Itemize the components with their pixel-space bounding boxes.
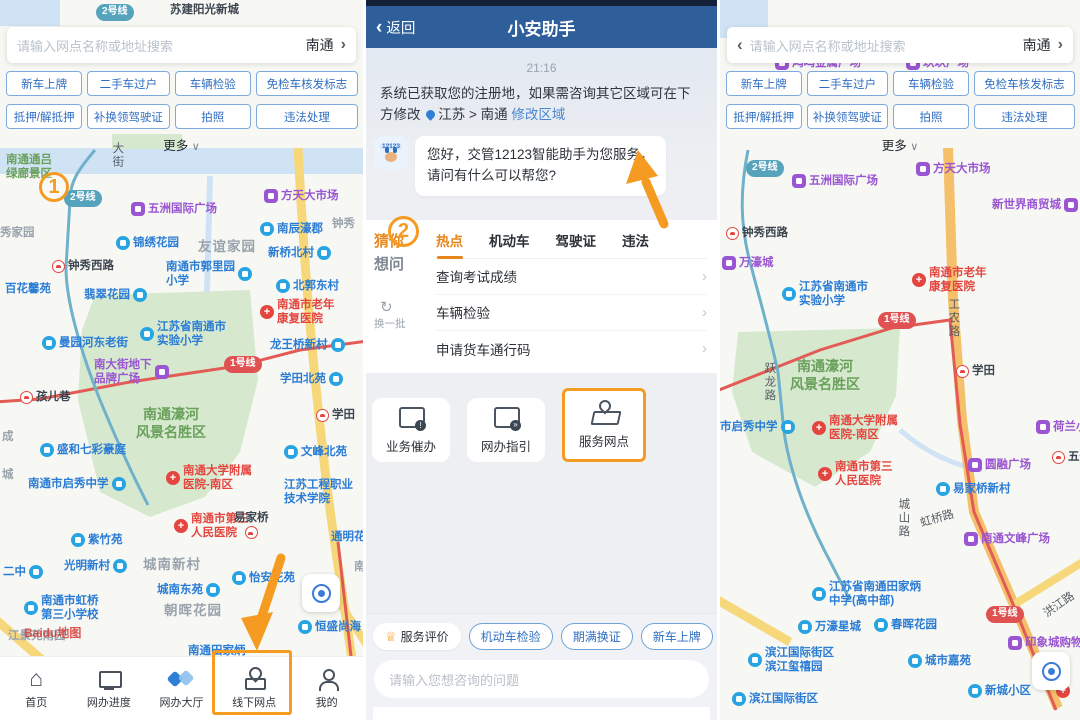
back-chevron-icon: ‹ (376, 18, 382, 37)
map-text-label: 百花馨苑 (5, 282, 51, 296)
chat-input[interactable]: 请输入您想咨询的问题 (374, 660, 709, 698)
building-pin-icon (798, 620, 812, 634)
back-label: 返回 (386, 17, 415, 38)
map-poi-label[interactable]: 南通市郭里园 小学 (166, 260, 252, 289)
map-text-label: 南 (354, 560, 363, 574)
service-button[interactable]: 免检车核发标志 (256, 71, 358, 96)
search-placeholder: 请输入网点名称或地址搜索 (750, 36, 1016, 55)
metro-line-badge: 2号线 (96, 4, 134, 21)
building-pin-icon (331, 338, 345, 352)
chat-footer: ♕ 服务评价 机动车检验期满换证新车上牌 请输入您想咨询的问题 (366, 613, 717, 720)
doc-icon (396, 405, 426, 431)
city-selector[interactable]: 南通 (306, 35, 334, 55)
tabbar-item-monitor[interactable]: 网办进度 (73, 657, 146, 720)
map-poi-label[interactable]: 印象城购物中心 (1008, 636, 1080, 650)
search-placeholder: 请输入网点名称或地址搜索 (17, 36, 299, 55)
map-poi-label[interactable]: 盛和七彩豪庭 (40, 443, 126, 457)
map-poi-label[interactable]: 新城小区 (968, 684, 1031, 698)
mall-pin-icon (264, 189, 278, 203)
bottom-tab-bar: ⌂首页网办进度网办大厅线下网点我的 (0, 656, 363, 720)
annotation-step-badge: 1 (39, 172, 69, 202)
caret-down-icon: ∨ (192, 141, 200, 153)
metro-station-label[interactable]: 学田 (316, 408, 355, 422)
mall-pin-icon (968, 458, 982, 472)
area-label: 南通濠河 风景名胜区 (790, 358, 860, 393)
mall-pin-icon (964, 532, 978, 546)
guess-side: 猜你 想问 ↻ 换一批 (374, 230, 436, 367)
map-poi-label[interactable]: 南通大学附属 医院-南区 (812, 414, 898, 443)
building-pin-icon (133, 288, 147, 302)
pin-icon (242, 667, 266, 691)
service-button[interactable]: 新车上牌 (6, 71, 82, 96)
system-message: 系统已获取您的注册地，如果需咨询其它区域可在下方修改 江苏 > 南通 修改区域 (380, 84, 703, 126)
map-poi-label[interactable]: 北郭东村 (276, 279, 339, 293)
home-icon: ⌂ (24, 667, 48, 691)
metro-station-label[interactable]: 钟秀西路 (726, 226, 788, 240)
service-button[interactable]: 补换领驾驶证 (87, 104, 169, 129)
guess-questions-panel: 猜你 想问 ↻ 换一批 热点机动车驾驶证违法 查询考试成绩›车辆检验›申请货车通… (366, 220, 717, 373)
building-pin-icon (40, 443, 54, 457)
metro-station-label[interactable]: 孩儿巷 (20, 390, 71, 404)
service-rating-chip[interactable]: ♕ 服务评价 (373, 623, 461, 650)
road-label: 城山路 (896, 498, 910, 539)
map-poi-label[interactable]: 光明新村 (64, 559, 127, 573)
question-tab[interactable]: 热点 (436, 230, 463, 250)
medal-icon: ♕ (385, 629, 397, 645)
map-poi-label[interactable]: 方天大市场 (264, 189, 339, 203)
chevron-right-icon: › (702, 268, 707, 285)
mall-pin-icon (155, 365, 169, 379)
crosshair-icon (1042, 662, 1061, 681)
annotation-step-2-badge: 2 (388, 216, 419, 247)
quick-chip[interactable]: 期满换证 (561, 623, 633, 650)
map-poi-label[interactable]: 南通市虹桥 第三小学校 (24, 594, 99, 623)
mall-pin-icon (916, 162, 930, 176)
action-card[interactable]: 网办指引 (467, 398, 545, 462)
chevron-right-icon: › (341, 36, 346, 54)
crosshair-icon (312, 584, 331, 603)
map-text-label: 江苏工程职业 技术学院 (284, 478, 353, 507)
question-tab[interactable]: 机动车 (489, 230, 530, 250)
search-bar[interactable]: 请输入网点名称或地址搜索 南通 › (7, 27, 356, 63)
mall-pin-icon (1064, 198, 1078, 212)
metro-station-icon (316, 409, 329, 422)
more-button[interactable]: 更多 ∨ (0, 135, 363, 154)
locate-me-button[interactable] (1032, 652, 1070, 690)
bottom-strip (373, 707, 710, 720)
service-button[interactable]: 二手车过户 (807, 71, 889, 96)
mall-pin-icon (131, 202, 145, 216)
refresh-icon: ↻ (380, 300, 393, 315)
mall-pin-icon (1036, 420, 1050, 434)
quick-chip[interactable]: 机动车检验 (469, 623, 553, 650)
caret-down-icon: ∨ (910, 141, 918, 153)
building-pin-icon (748, 653, 762, 667)
chevron-right-icon: › (702, 340, 707, 357)
building-pin-icon (329, 372, 343, 386)
building-pin-icon (908, 654, 922, 668)
metro-station-label[interactable]: 学田 (956, 364, 995, 378)
metro-station-icon (726, 227, 739, 240)
guide-icon (491, 405, 521, 431)
metro-station-label[interactable]: 钟秀西路 (52, 259, 114, 273)
service-button[interactable]: 新车上牌 (726, 71, 802, 96)
service-button[interactable]: 抵押/解抵押 (6, 104, 82, 129)
service-button[interactable]: 免检车核发标志 (974, 71, 1075, 96)
area-label: 南通濠河 风景名胜区 (136, 406, 206, 441)
back-button[interactable]: ‹ 返回 (376, 17, 415, 38)
annotation-arrow-up (618, 148, 682, 238)
building-pin-icon (781, 420, 795, 434)
building-pin-icon (113, 559, 127, 573)
map-poi-label[interactable]: 翡翠花园 (84, 288, 147, 302)
building-pin-icon (238, 267, 252, 281)
tabbar-item-pin[interactable]: 线下网点 (218, 657, 291, 720)
map-poi-label[interactable]: 圆融广场 (968, 458, 1031, 472)
city-selector[interactable]: 南通 (1023, 35, 1051, 55)
question-item[interactable]: 车辆检验› (436, 295, 707, 331)
avatar-12123-tag: 12123 (380, 143, 402, 150)
map-poi-label[interactable]: 南辰濠郡 (260, 222, 323, 236)
map-poi-label[interactable]: 滨江国际街区 (732, 692, 818, 706)
location-pin-icon (424, 108, 437, 121)
building-pin-icon (116, 236, 130, 250)
map-poi-label[interactable]: 文峰北苑 (284, 445, 347, 459)
map-poi-label[interactable]: 市启秀中学 (720, 420, 795, 434)
road-label: 跃龙路 (762, 362, 776, 403)
map-poi-label[interactable]: 江苏省南通市 实验小学 (782, 280, 868, 309)
service-button[interactable]: 补换领驾驶证 (807, 104, 889, 129)
hospital-pin-icon (260, 305, 274, 319)
map-panel-left: 苏建阳光新城2号线南通通吕 绿廊景区12号线大街五洲国际广场方天大市场南辰濠郡钟… (0, 0, 363, 720)
question-list: 查询考试成绩›车辆检验›申请货车通行码› (436, 259, 707, 367)
building-pin-icon (29, 565, 43, 579)
building-pin-icon (276, 279, 290, 293)
map-panel-right: 鸿鸣金属广场玖玖广场2号线五洲国际广场方天大市场新世界商贸城钟秀西路万濠城江苏省… (720, 0, 1080, 720)
building-pin-icon (936, 482, 950, 496)
chat-header: ‹ 返回 小安助手 (366, 6, 717, 48)
map-poi-label[interactable]: 南通文峰广场 (964, 532, 1050, 546)
map-text-label: 成 (2, 430, 14, 444)
map-poi-label[interactable]: 南大街地下 品牌广场 (94, 358, 169, 387)
tabbar-item-user[interactable]: 我的 (290, 657, 363, 720)
baidu-watermark: Baidu地图 (24, 626, 81, 641)
more-button[interactable]: 更多 ∨ (720, 135, 1080, 154)
map-poi-label[interactable]: 五洲国际广场 (792, 174, 878, 188)
question-item[interactable]: 查询考试成绩› (436, 259, 707, 295)
service-button[interactable]: 违法处理 (974, 104, 1075, 129)
back-chevron-icon[interactable]: ‹ (737, 35, 743, 55)
metro-station-icon (52, 260, 65, 273)
map-text-label: 钟秀 (332, 217, 355, 231)
map-poi-label[interactable]: 易家桥新村 (936, 482, 1011, 496)
map-poi-label[interactable]: 五洲国际广场 (131, 202, 217, 216)
monitor-icon (97, 667, 121, 691)
chat-panel: ‹ 返回 小安助手 21:16 系统已获取您的注册地，如果需咨询其它区域可在下方… (363, 0, 720, 720)
map-poi-label[interactable]: 南通市启秀中学 (28, 477, 126, 491)
map-text-label: 城南新村 (143, 557, 201, 574)
map-poi-label[interactable]: 龙王桥新村 (270, 338, 345, 352)
service-button[interactable]: 车辆检验 (893, 71, 969, 96)
map-poi-label[interactable]: 城南东苑 (157, 583, 220, 597)
action-cards: 业务催办网办指引服务网点 (372, 388, 711, 462)
hospital-pin-icon (166, 471, 180, 485)
building-pin-icon (206, 583, 220, 597)
metro-line-badge: 2号线 (746, 160, 784, 177)
chevron-right-icon: › (702, 304, 707, 321)
map-poi-label[interactable]: 曼园河东老街 (42, 336, 128, 350)
map-poi-label[interactable]: 江苏省南通市 实验小学 (140, 320, 226, 349)
action-card[interactable]: 业务催办 (372, 398, 450, 462)
annotation-arrow-down (233, 548, 297, 660)
building-pin-icon (298, 620, 312, 634)
mall-pin-icon (792, 174, 806, 188)
mall-pin-icon (722, 256, 736, 270)
timestamp: 21:16 (366, 48, 717, 75)
hospital-pin-icon (912, 273, 926, 287)
metro-line-badge: 1号线 (986, 606, 1024, 623)
service-button-grid: 新车上牌二手车过户车辆检验免检车核发标志抵押/解抵押补换领驾驶证拍照违法处理 (726, 71, 1075, 129)
map-poi-label[interactable]: 万濠城 (722, 256, 774, 270)
action-card[interactable]: 服务网点 (562, 388, 646, 462)
map-poi-label[interactable]: 城市嘉苑 (908, 654, 971, 668)
metro-station-label[interactable]: 五一 (1052, 450, 1080, 464)
guess-main: 热点机动车驾驶证违法 查询考试成绩›车辆检验›申请货车通行码› (436, 230, 707, 367)
building-pin-icon (112, 477, 126, 491)
metro-station-icon (1052, 451, 1065, 464)
metro-line-badge: 1号线 (224, 356, 262, 373)
building-pin-icon (42, 336, 56, 350)
map-poi-label[interactable]: 新世界商贸城 (992, 198, 1078, 212)
service-button[interactable]: 拍照 (175, 104, 251, 129)
map-poi-label[interactable]: 二中 (3, 565, 43, 579)
tabbar-item-hall[interactable]: 网办大厅 (145, 657, 218, 720)
service-button[interactable]: 二手车过户 (87, 71, 169, 96)
map-text-label: 城 (2, 468, 14, 482)
map-text-label: 友谊家园 (198, 239, 256, 256)
building-pin-icon (812, 587, 826, 601)
deer-mascot-icon (385, 152, 397, 162)
hospital-pin-icon (174, 519, 188, 533)
edit-region-link[interactable]: 修改区域 (511, 107, 565, 122)
chat-body: 21:16 系统已获取您的注册地，如果需咨询其它区域可在下方修改 江苏 > 南通… (366, 48, 717, 613)
metro-station-label[interactable]: 易家桥 (234, 511, 269, 539)
metro-station-icon (956, 365, 969, 378)
metro-station-icon (245, 526, 258, 539)
map-text-label: 秀家园 (0, 226, 35, 240)
service-button[interactable]: 抵押/解抵押 (726, 104, 802, 129)
quick-chip[interactable]: 新车上牌 (641, 623, 713, 650)
hospital-pin-icon (812, 421, 826, 435)
hospital-pin-icon (818, 467, 832, 481)
map-poi-label[interactable]: 南通市老年 康复医院 (260, 298, 335, 327)
screenshot-stage: 苏建阳光新城2号线南通通吕 绿廊景区12号线大街五洲国际广场方天大市场南辰濠郡钟… (0, 0, 1080, 720)
search-bar[interactable]: ‹ 请输入网点名称或地址搜索 南通 › (727, 27, 1073, 63)
building-pin-icon (732, 692, 746, 706)
user-icon (315, 667, 339, 691)
building-pin-icon (140, 327, 154, 341)
hall-icon (169, 667, 193, 691)
service-button[interactable]: 拍照 (893, 104, 969, 129)
locate-me-button[interactable] (302, 574, 340, 612)
map-poi-label[interactable]: 恒盛尚海 (298, 620, 361, 634)
question-item[interactable]: 申请货车通行码› (436, 331, 707, 367)
metro-station-icon (20, 391, 33, 404)
map-poi-label[interactable]: 江苏省南通田家炳 中学(高中部) (812, 580, 921, 609)
map-text-label: 朝晖花园 (164, 603, 222, 620)
map-poi-label[interactable]: 南通市第三 人民医院 (818, 460, 893, 489)
page-title: 小安助手 (366, 15, 717, 40)
map-poi-label[interactable]: 锦绣花园 (116, 236, 179, 250)
map-poi-label[interactable]: 方天大市场 (916, 162, 991, 176)
guess-title-bottom: 想问 (374, 253, 436, 274)
assistant-avatar: 12123 (374, 136, 408, 170)
region-path: 江苏 > 南通 (438, 107, 507, 122)
building-pin-icon (968, 684, 982, 698)
map-poi-label[interactable]: 南通大学附属 医院-南区 (166, 464, 252, 493)
building-pin-icon (24, 601, 38, 615)
building-pin-icon (284, 445, 298, 459)
map-poi-label[interactable]: 滨江国际街区 滨江玺禧园 (748, 646, 834, 675)
map-text-label: 苏建阳光新城 (170, 3, 239, 17)
map-poi-label[interactable]: 春晖花园 (874, 618, 937, 632)
service-button[interactable]: 违法处理 (256, 104, 358, 129)
map-poi-label[interactable]: 新桥北村 (268, 246, 331, 260)
tabbar-item-home[interactable]: ⌂首页 (0, 657, 73, 720)
refresh-button[interactable]: ↻ 换一批 (374, 300, 436, 331)
building-pin-icon (260, 222, 274, 236)
map-poi-label[interactable]: 紫竹苑 (71, 533, 123, 547)
metro-line-badge: 1号线 (878, 312, 916, 329)
mall-pin-icon (1008, 636, 1022, 650)
chevron-right-icon: › (1058, 36, 1063, 54)
map-text-label: 通明花苑 (331, 530, 363, 544)
service-button[interactable]: 车辆检验 (175, 71, 251, 96)
building-pin-icon (71, 533, 85, 547)
building-pin-icon (317, 246, 331, 260)
building-pin-icon (782, 287, 796, 301)
chat-input-placeholder: 请输入您想咨询的问题 (389, 670, 519, 689)
mappin-icon (589, 400, 619, 426)
metro-line-badge: 2号线 (64, 190, 102, 207)
quick-chips-row: ♕ 服务评价 机动车检验期满换证新车上牌 (373, 623, 710, 650)
map-poi-label[interactable]: 南通市老年 康复医院 (912, 266, 987, 295)
map-poi-label[interactable]: 万濠星城 (798, 620, 861, 634)
service-button-grid: 新车上牌二手车过户车辆检验免检车核发标志抵押/解抵押补换领驾驶证拍照违法处理 (6, 71, 358, 129)
map-poi-label[interactable]: 学田北苑 (280, 372, 343, 386)
map-poi-label[interactable]: 荷兰小镇 (1036, 420, 1080, 434)
building-pin-icon (874, 618, 888, 632)
road-label: 工农路 (946, 298, 960, 339)
question-tab[interactable]: 驾驶证 (556, 230, 597, 250)
